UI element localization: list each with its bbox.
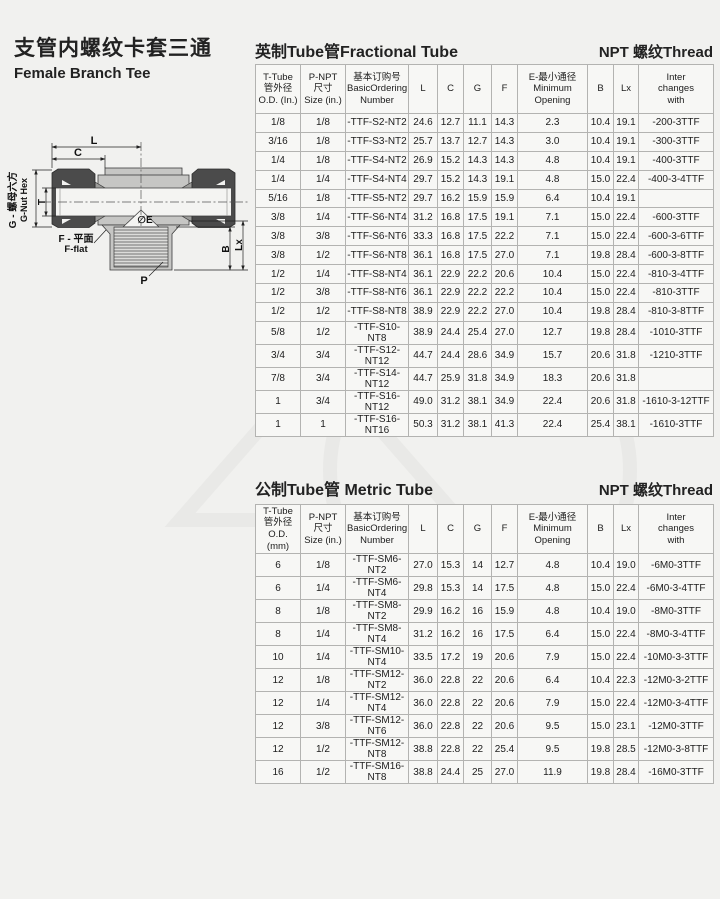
table-cell: 36.0 bbox=[409, 692, 438, 715]
table-cell: 16.8 bbox=[438, 246, 464, 265]
table-cell: 1/8 bbox=[301, 669, 346, 692]
table-row: 3/81/2-TTF-S6-NT836.116.817.527.07.119.8… bbox=[256, 246, 714, 265]
table-cell: 12.7 bbox=[518, 321, 588, 344]
table-cell: -400-3-4TTF bbox=[639, 170, 714, 189]
table-cell: 15.9 bbox=[492, 600, 518, 623]
table-cell: 14.3 bbox=[464, 151, 492, 170]
table-cell: -810-3TTF bbox=[639, 284, 714, 303]
table-cell: -8M0-3TTF bbox=[639, 600, 714, 623]
table-cell: 24.4 bbox=[438, 321, 464, 344]
table-cell: 7.1 bbox=[518, 227, 588, 246]
table-cell: 14 bbox=[464, 554, 492, 577]
table-cell: -300-3TTF bbox=[639, 132, 714, 151]
table-cell: 36.1 bbox=[409, 246, 438, 265]
dim-label-e: ∅E bbox=[137, 215, 153, 226]
table-cell: 16.8 bbox=[438, 227, 464, 246]
table-cell: -16M0-3TTF bbox=[639, 761, 714, 784]
table-cell: 19.8 bbox=[588, 321, 614, 344]
table-cell: 7/8 bbox=[256, 367, 301, 390]
table-cell: 3.0 bbox=[518, 132, 588, 151]
table-cell: 22.2 bbox=[492, 284, 518, 303]
table-cell: 27.0 bbox=[492, 302, 518, 321]
table-cell: 4.8 bbox=[518, 600, 588, 623]
table-row: 3/83/8-TTF-S6-NT633.316.817.522.27.115.0… bbox=[256, 227, 714, 246]
table-cell: 28.4 bbox=[614, 321, 639, 344]
table-cell: 38.1 bbox=[464, 390, 492, 413]
table-cell: 22.4 bbox=[614, 284, 639, 303]
table-cell: 1/8 bbox=[301, 151, 346, 170]
table-row: 5/161/8-TTF-S5-NT229.716.215.915.96.410.… bbox=[256, 189, 714, 208]
table-cell: -6M0-3-4TTF bbox=[639, 577, 714, 600]
table-cell: 6.4 bbox=[518, 669, 588, 692]
table-cell: 1/2 bbox=[301, 302, 346, 321]
table-cell: 22 bbox=[464, 692, 492, 715]
table-cell: 16 bbox=[256, 761, 301, 784]
column-header: Interchangeswith bbox=[639, 65, 714, 114]
table-cell: 19.1 bbox=[492, 170, 518, 189]
table-cell: 1/2 bbox=[301, 738, 346, 761]
table-cell: 15.0 bbox=[588, 623, 614, 646]
table-cell: 22.4 bbox=[614, 208, 639, 227]
table-cell: -1610-3-12TTF bbox=[639, 390, 714, 413]
column-header: B bbox=[588, 505, 614, 554]
metric-table: T-Tube管外径O.D. (mm)P-NPT尺寸Size (in.)基本订购号… bbox=[255, 504, 714, 784]
table-cell: 19.1 bbox=[614, 189, 639, 208]
table-cell: 36.1 bbox=[409, 284, 438, 303]
table-cell: 27.0 bbox=[492, 246, 518, 265]
table-row: 1/41/4-TTF-S4-NT429.715.214.319.14.815.0… bbox=[256, 170, 714, 189]
table-row: 61/8-TTF-SM6-NT227.015.31412.74.810.419.… bbox=[256, 554, 714, 577]
table-cell: 33.3 bbox=[409, 227, 438, 246]
table-cell: 8 bbox=[256, 600, 301, 623]
fractional-section-title: 英制Tube管Fractional Tube bbox=[255, 38, 458, 62]
table-cell: -10M0-3-3TTF bbox=[639, 646, 714, 669]
table-cell: -TTF-S4-NT4 bbox=[346, 170, 409, 189]
table-cell: 5/16 bbox=[256, 189, 301, 208]
table-cell: 15.3 bbox=[438, 577, 464, 600]
table-cell: -12M0-3-8TTF bbox=[639, 738, 714, 761]
table-cell: 9.5 bbox=[518, 715, 588, 738]
table-cell: 27.0 bbox=[492, 321, 518, 344]
column-header: Lx bbox=[614, 505, 639, 554]
table-cell: -TTF-S6-NT4 bbox=[346, 208, 409, 227]
table-cell: 34.9 bbox=[492, 390, 518, 413]
column-header: 基本订购号BasicOrderingNumber bbox=[346, 505, 409, 554]
npt-threads bbox=[114, 227, 168, 267]
table-cell: 2.3 bbox=[518, 114, 588, 133]
column-header: F bbox=[492, 65, 518, 114]
table-cell: 12 bbox=[256, 669, 301, 692]
table-cell: 20.6 bbox=[588, 367, 614, 390]
table-cell: 25.4 bbox=[588, 413, 614, 436]
table-cell: 7.1 bbox=[518, 208, 588, 227]
table-cell: 13.7 bbox=[438, 132, 464, 151]
table-cell: 15.2 bbox=[438, 151, 464, 170]
table-cell: 31.2 bbox=[409, 208, 438, 227]
table-cell: 10.4 bbox=[588, 132, 614, 151]
table-cell: -TTF-S3-NT2 bbox=[346, 132, 409, 151]
table-cell: 12.7 bbox=[492, 554, 518, 577]
table-cell: 38.1 bbox=[464, 413, 492, 436]
table-cell: -TTF-S16-NT16 bbox=[346, 413, 409, 436]
table-cell: 3/4 bbox=[301, 390, 346, 413]
column-header: G bbox=[464, 65, 492, 114]
table-cell: 22.2 bbox=[464, 302, 492, 321]
table-row: 1/81/8-TTF-S2-NT224.612.711.114.32.310.4… bbox=[256, 114, 714, 133]
table-cell: 15.0 bbox=[588, 265, 614, 284]
table-cell: 20.6 bbox=[588, 344, 614, 367]
table-cell: 36.0 bbox=[409, 715, 438, 738]
table-cell: 31.2 bbox=[438, 390, 464, 413]
table-cell: 41.3 bbox=[492, 413, 518, 436]
table-row: 7/83/4-TTF-S14-NT1244.725.931.834.918.32… bbox=[256, 367, 714, 390]
table-cell: -TTF-S4-NT2 bbox=[346, 151, 409, 170]
table-row: 13/4-TTF-S16-NT1249.031.238.134.922.420.… bbox=[256, 390, 714, 413]
table-cell: -TTF-S12-NT12 bbox=[346, 344, 409, 367]
table-cell: 7.9 bbox=[518, 646, 588, 669]
column-header: C bbox=[438, 65, 464, 114]
table-cell: 34.9 bbox=[492, 367, 518, 390]
table-cell: -12M0-3TTF bbox=[639, 715, 714, 738]
table-cell: 6 bbox=[256, 577, 301, 600]
table-cell: 1/8 bbox=[301, 554, 346, 577]
table-cell: 22.4 bbox=[518, 390, 588, 413]
column-header: G bbox=[464, 505, 492, 554]
table-cell: 3/16 bbox=[256, 132, 301, 151]
table-cell: -TTF-S6-NT8 bbox=[346, 246, 409, 265]
table-row: 81/8-TTF-SM8-NT229.916.21615.94.810.419.… bbox=[256, 600, 714, 623]
table-cell: 31.8 bbox=[464, 367, 492, 390]
fitting-diagram: L C T G - 螺母六方 G-Nut Hex ∅E F - 平面 F-fla… bbox=[2, 130, 254, 335]
table-cell: -TTF-S6-NT6 bbox=[346, 227, 409, 246]
table-cell: 19.8 bbox=[588, 738, 614, 761]
table-cell: -810-3-8TTF bbox=[639, 302, 714, 321]
table-cell: 24.6 bbox=[409, 114, 438, 133]
table-cell: 4.8 bbox=[518, 577, 588, 600]
table-cell: 23.1 bbox=[614, 715, 639, 738]
column-header: T-Tube管外径O.D. (mm) bbox=[256, 505, 301, 554]
table-cell: 17.5 bbox=[464, 227, 492, 246]
table-cell: 22.9 bbox=[438, 284, 464, 303]
column-header: T-Tube管外径O.D. (In.) bbox=[256, 65, 301, 114]
table-cell: 31.2 bbox=[438, 413, 464, 436]
table-cell: 26.9 bbox=[409, 151, 438, 170]
table-cell: -TTF-SM12-NT8 bbox=[346, 738, 409, 761]
table-cell: 10.4 bbox=[518, 284, 588, 303]
table-cell: 29.7 bbox=[409, 189, 438, 208]
table-cell: 44.7 bbox=[409, 367, 438, 390]
table-cell: 15.9 bbox=[492, 189, 518, 208]
table-cell: -400-3TTF bbox=[639, 151, 714, 170]
table-cell: -8M0-3-4TTF bbox=[639, 623, 714, 646]
table-cell: -TTF-SM12-NT4 bbox=[346, 692, 409, 715]
table-cell: 19.1 bbox=[492, 208, 518, 227]
page-title-zh: 支管内螺纹卡套三通 bbox=[14, 32, 212, 62]
gnut-label-en: G-Nut Hex bbox=[19, 178, 29, 222]
table-cell: 1/4 bbox=[301, 265, 346, 284]
table-row: 121/4-TTF-SM12-NT436.022.82220.67.915.02… bbox=[256, 692, 714, 715]
table-cell: -200-3TTF bbox=[639, 114, 714, 133]
table-cell: 4.8 bbox=[518, 151, 588, 170]
table-cell: 22.2 bbox=[464, 284, 492, 303]
table-cell: 11.1 bbox=[464, 114, 492, 133]
table-cell: 3/4 bbox=[301, 344, 346, 367]
table-cell: 1/4 bbox=[256, 151, 301, 170]
table-cell: 1/4 bbox=[256, 170, 301, 189]
table-cell: 22.4 bbox=[614, 692, 639, 715]
table-cell: 15.2 bbox=[438, 170, 464, 189]
fractional-section-header: 英制Tube管Fractional Tube NPT 螺纹Thread bbox=[255, 38, 713, 62]
dim-label-lx: Lx bbox=[234, 239, 245, 251]
table-cell: 16 bbox=[464, 600, 492, 623]
table-cell: 50.3 bbox=[409, 413, 438, 436]
table-cell: 25.9 bbox=[438, 367, 464, 390]
table-cell: 8 bbox=[256, 623, 301, 646]
table-cell: 22.4 bbox=[614, 646, 639, 669]
table-cell: 24.4 bbox=[438, 761, 464, 784]
table-cell: -TTF-S8-NT6 bbox=[346, 284, 409, 303]
table-row: 3/81/4-TTF-S6-NT431.216.817.519.17.115.0… bbox=[256, 208, 714, 227]
table-cell: 14 bbox=[464, 577, 492, 600]
table-cell: 49.0 bbox=[409, 390, 438, 413]
column-header: C bbox=[438, 505, 464, 554]
table-cell: 22.4 bbox=[614, 227, 639, 246]
table-cell: 6 bbox=[256, 554, 301, 577]
table-cell: 22 bbox=[464, 738, 492, 761]
table-cell: -1010-3TTF bbox=[639, 321, 714, 344]
table-cell: 12.7 bbox=[438, 114, 464, 133]
table-cell: 1/2 bbox=[256, 284, 301, 303]
metric-section-title: 公制Tube管 Metric Tube bbox=[255, 476, 433, 500]
table-cell: 17.5 bbox=[492, 623, 518, 646]
table-cell: -TTF-S5-NT2 bbox=[346, 189, 409, 208]
table-row: 101/4-TTF-SM10-NT433.517.21920.67.915.02… bbox=[256, 646, 714, 669]
table-cell: 20.6 bbox=[492, 715, 518, 738]
table-cell: 16.2 bbox=[438, 623, 464, 646]
table-cell: 1/2 bbox=[256, 265, 301, 284]
table-cell: 22.4 bbox=[614, 623, 639, 646]
table-cell: 17.2 bbox=[438, 646, 464, 669]
table-cell: 3/4 bbox=[301, 367, 346, 390]
table-cell: 20.6 bbox=[492, 646, 518, 669]
table-cell: 15.0 bbox=[588, 577, 614, 600]
table-cell: -TTF-S8-NT4 bbox=[346, 265, 409, 284]
table-row: 81/4-TTF-SM8-NT431.216.21617.56.415.022.… bbox=[256, 623, 714, 646]
table-cell: 31.8 bbox=[614, 344, 639, 367]
table-cell: 4.8 bbox=[518, 170, 588, 189]
table-cell: -TTF-S14-NT12 bbox=[346, 367, 409, 390]
table-cell: 22.8 bbox=[438, 692, 464, 715]
table-cell: 3/8 bbox=[301, 715, 346, 738]
table-row: 1/21/4-TTF-S8-NT436.122.922.220.610.415.… bbox=[256, 265, 714, 284]
table-cell: 16 bbox=[464, 623, 492, 646]
table-cell: 1 bbox=[301, 413, 346, 436]
table-cell: 10.4 bbox=[588, 114, 614, 133]
table-row: 161/2-TTF-SM16-NT838.824.42527.011.919.8… bbox=[256, 761, 714, 784]
column-header: B bbox=[588, 65, 614, 114]
table-cell: 1/8 bbox=[256, 114, 301, 133]
table-cell: 16.2 bbox=[438, 600, 464, 623]
table-row: 3/161/8-TTF-S3-NT225.713.712.714.33.010.… bbox=[256, 132, 714, 151]
table-cell: 6.4 bbox=[518, 189, 588, 208]
table-cell: 1/8 bbox=[301, 132, 346, 151]
table-cell: 1/2 bbox=[301, 246, 346, 265]
table-row: 121/2-TTF-SM12-NT838.822.82225.49.519.82… bbox=[256, 738, 714, 761]
table-cell: 20.6 bbox=[492, 692, 518, 715]
table-cell: 15.0 bbox=[588, 692, 614, 715]
table-cell: 1/8 bbox=[301, 189, 346, 208]
dim-label-b: B bbox=[221, 245, 232, 252]
table-cell: 10.4 bbox=[588, 554, 614, 577]
table-cell: 17.5 bbox=[492, 577, 518, 600]
table-cell: 31.2 bbox=[409, 623, 438, 646]
table-cell: 14.3 bbox=[464, 170, 492, 189]
table-cell: 28.6 bbox=[464, 344, 492, 367]
table-cell: 28.5 bbox=[614, 738, 639, 761]
table-cell: 28.4 bbox=[614, 246, 639, 265]
table-row: 3/43/4-TTF-S12-NT1244.724.428.634.915.72… bbox=[256, 344, 714, 367]
table-cell: 29.9 bbox=[409, 600, 438, 623]
table-cell: 22.9 bbox=[438, 302, 464, 321]
table-cell: 29.8 bbox=[409, 577, 438, 600]
table-cell: -TTF-S10-NT8 bbox=[346, 321, 409, 344]
table-row: 11-TTF-S16-NT1650.331.238.141.322.425.43… bbox=[256, 413, 714, 436]
table-cell: 1 bbox=[256, 413, 301, 436]
header-row: T-Tube管外径O.D. (mm)P-NPT尺寸Size (in.)基本订购号… bbox=[256, 505, 714, 554]
table-cell: 33.5 bbox=[409, 646, 438, 669]
table-cell: -12M0-3-4TTF bbox=[639, 692, 714, 715]
table-cell: 34.9 bbox=[492, 344, 518, 367]
table-cell: 12.7 bbox=[464, 132, 492, 151]
fflat-label-en: F-flat bbox=[64, 244, 88, 255]
dim-label-c: C bbox=[74, 147, 82, 159]
table-cell: 15.0 bbox=[588, 284, 614, 303]
gnut-label-zh: G - 螺母六方 bbox=[6, 172, 19, 229]
table-cell: -1210-3TTF bbox=[639, 344, 714, 367]
table-cell: 10 bbox=[256, 646, 301, 669]
table-cell bbox=[639, 189, 714, 208]
column-header: L bbox=[409, 65, 438, 114]
table-cell: 9.5 bbox=[518, 738, 588, 761]
table-cell: -TTF-SM8-NT2 bbox=[346, 600, 409, 623]
column-header: Interchangeswith bbox=[639, 505, 714, 554]
column-header: E-最小通径MinimumOpening bbox=[518, 65, 588, 114]
table-cell: 10.4 bbox=[588, 151, 614, 170]
column-header: P-NPT尺寸Size (in.) bbox=[301, 65, 346, 114]
table-cell: -TTF-SM10-NT4 bbox=[346, 646, 409, 669]
table-cell: 10.4 bbox=[518, 265, 588, 284]
table-cell: 3/4 bbox=[256, 344, 301, 367]
dim-label-p: P bbox=[140, 275, 147, 287]
table-cell: 25.7 bbox=[409, 132, 438, 151]
table-cell: 31.8 bbox=[614, 367, 639, 390]
table-cell: 1/8 bbox=[301, 600, 346, 623]
table-cell: -TTF-SM12-NT2 bbox=[346, 669, 409, 692]
page-title-en: Female Branch Tee bbox=[14, 65, 212, 82]
table-cell: 22 bbox=[464, 715, 492, 738]
table-cell: 3/8 bbox=[256, 208, 301, 227]
table-cell: 1/4 bbox=[301, 577, 346, 600]
table-cell: 24.4 bbox=[438, 344, 464, 367]
table-cell: 14.3 bbox=[492, 114, 518, 133]
table-cell: 22.9 bbox=[438, 265, 464, 284]
table-row: 1/23/8-TTF-S8-NT636.122.922.222.210.415.… bbox=[256, 284, 714, 303]
table-cell: 10.4 bbox=[588, 189, 614, 208]
header-row: T-Tube管外径O.D. (In.)P-NPT尺寸Size (in.)基本订购… bbox=[256, 65, 714, 114]
table-cell: 10.4 bbox=[588, 669, 614, 692]
table-cell: 15.9 bbox=[464, 189, 492, 208]
table-cell: 19.0 bbox=[614, 554, 639, 577]
table-cell: 1 bbox=[256, 390, 301, 413]
table-cell: 15.7 bbox=[518, 344, 588, 367]
table-cell: 1/4 bbox=[301, 170, 346, 189]
table-cell: 19.1 bbox=[614, 151, 639, 170]
table-cell: 1/4 bbox=[301, 623, 346, 646]
table-cell: 22.2 bbox=[492, 227, 518, 246]
table-cell: -600-3-6TTF bbox=[639, 227, 714, 246]
column-header: P-NPT尺寸Size (in.) bbox=[301, 505, 346, 554]
table-cell: 38.9 bbox=[409, 321, 438, 344]
table-cell: 1/4 bbox=[301, 692, 346, 715]
table-cell: 1/2 bbox=[301, 321, 346, 344]
table-cell: 10.4 bbox=[588, 600, 614, 623]
table-cell: 15.0 bbox=[588, 208, 614, 227]
table-cell: -810-3-4TTF bbox=[639, 265, 714, 284]
table-cell: 15.0 bbox=[588, 646, 614, 669]
table-cell: 19.1 bbox=[614, 132, 639, 151]
table-cell: 7.9 bbox=[518, 692, 588, 715]
table-cell: 27.0 bbox=[492, 761, 518, 784]
table-cell: 1/4 bbox=[301, 646, 346, 669]
table-cell: 22.4 bbox=[614, 577, 639, 600]
table-cell: 3/8 bbox=[256, 227, 301, 246]
column-header: 基本订购号BasicOrderingNumber bbox=[346, 65, 409, 114]
table-cell: -1610-3TTF bbox=[639, 413, 714, 436]
table-cell: 22.4 bbox=[614, 265, 639, 284]
table-cell: 12 bbox=[256, 692, 301, 715]
table-row: 61/4-TTF-SM6-NT429.815.31417.54.815.022.… bbox=[256, 577, 714, 600]
table-cell: 16.2 bbox=[438, 189, 464, 208]
table-cell: 19.1 bbox=[614, 114, 639, 133]
table-cell: 19.8 bbox=[588, 302, 614, 321]
table-cell: 38.9 bbox=[409, 302, 438, 321]
table-cell: 18.3 bbox=[518, 367, 588, 390]
table-cell: 31.8 bbox=[614, 390, 639, 413]
table-cell: -600-3TTF bbox=[639, 208, 714, 227]
table-cell: 36.1 bbox=[409, 265, 438, 284]
table-cell: 22 bbox=[464, 669, 492, 692]
table-cell: 1/8 bbox=[301, 114, 346, 133]
table-cell: 1/2 bbox=[256, 302, 301, 321]
dim-label-l: L bbox=[91, 135, 98, 147]
table-cell: -TTF-SM8-NT4 bbox=[346, 623, 409, 646]
table-cell: 19.8 bbox=[588, 761, 614, 784]
table-cell: 29.7 bbox=[409, 170, 438, 189]
table-cell: 22.2 bbox=[464, 265, 492, 284]
table-cell: 22.4 bbox=[614, 170, 639, 189]
column-header: E-最小通径MinimumOpening bbox=[518, 505, 588, 554]
table-cell: 25.4 bbox=[464, 321, 492, 344]
table-row: 1/21/2-TTF-S8-NT838.922.922.227.010.419.… bbox=[256, 302, 714, 321]
table-cell: 20.6 bbox=[492, 265, 518, 284]
fractional-table: T-Tube管外径O.D. (In.)P-NPT尺寸Size (in.)基本订购… bbox=[255, 64, 714, 437]
table-cell: 3/8 bbox=[256, 246, 301, 265]
table-cell: 10.4 bbox=[518, 302, 588, 321]
table-cell: 16.8 bbox=[438, 208, 464, 227]
column-header: Lx bbox=[614, 65, 639, 114]
table-cell: 20.6 bbox=[588, 390, 614, 413]
table-cell: 20.6 bbox=[492, 669, 518, 692]
